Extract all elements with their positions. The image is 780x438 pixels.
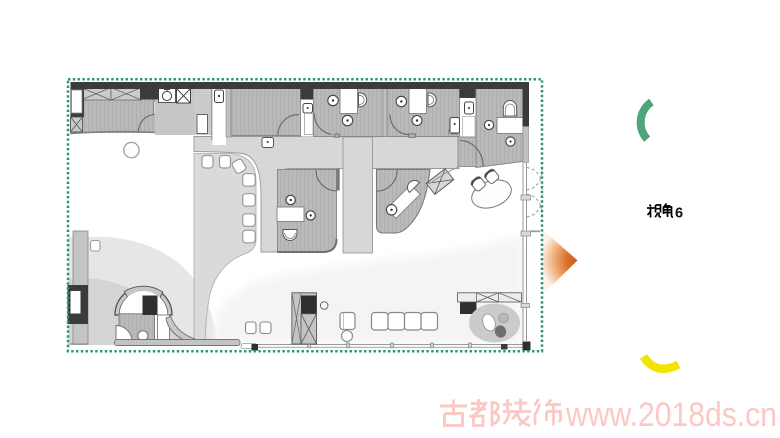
svg-text:www.2018ds.cn: www.2018ds.cn	[565, 396, 777, 434]
svg-text:6: 6	[675, 206, 683, 222]
